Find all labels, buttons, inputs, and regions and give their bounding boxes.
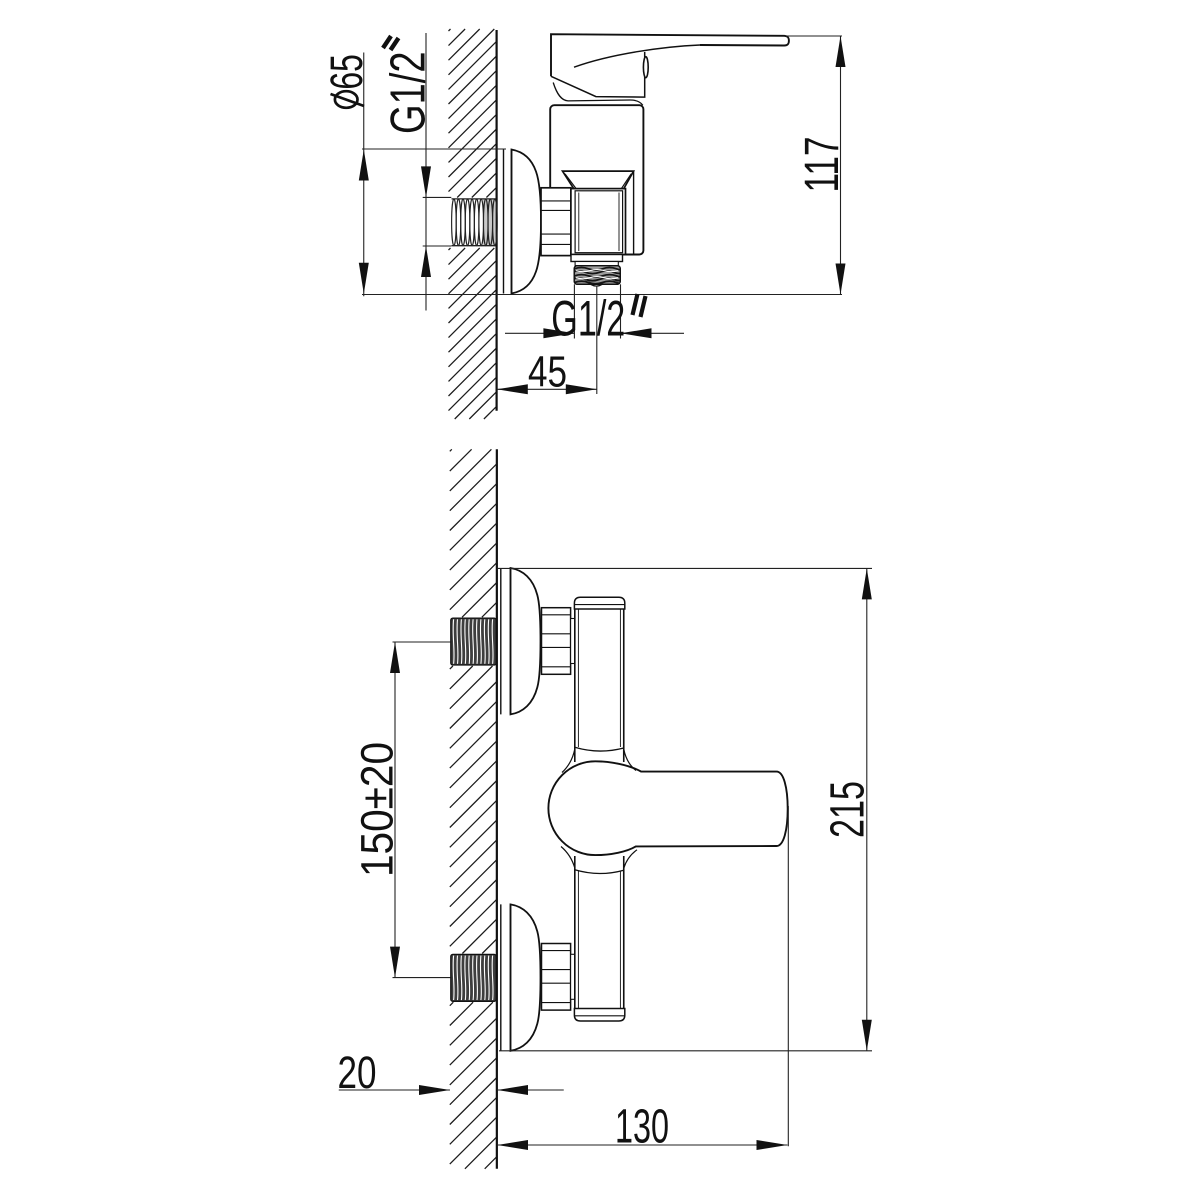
svg-text:215: 215 xyxy=(822,781,875,838)
svg-text:20: 20 xyxy=(338,1047,377,1098)
svg-text:65: 65 xyxy=(321,54,372,90)
svg-text:G1/2: G1/2 xyxy=(551,290,625,346)
svg-text:45: 45 xyxy=(528,348,567,397)
svg-text:150±20: 150±20 xyxy=(352,742,403,877)
svg-text:G1/2: G1/2 xyxy=(382,52,436,135)
svg-text:130: 130 xyxy=(615,1101,669,1154)
svg-text:117: 117 xyxy=(796,137,849,193)
